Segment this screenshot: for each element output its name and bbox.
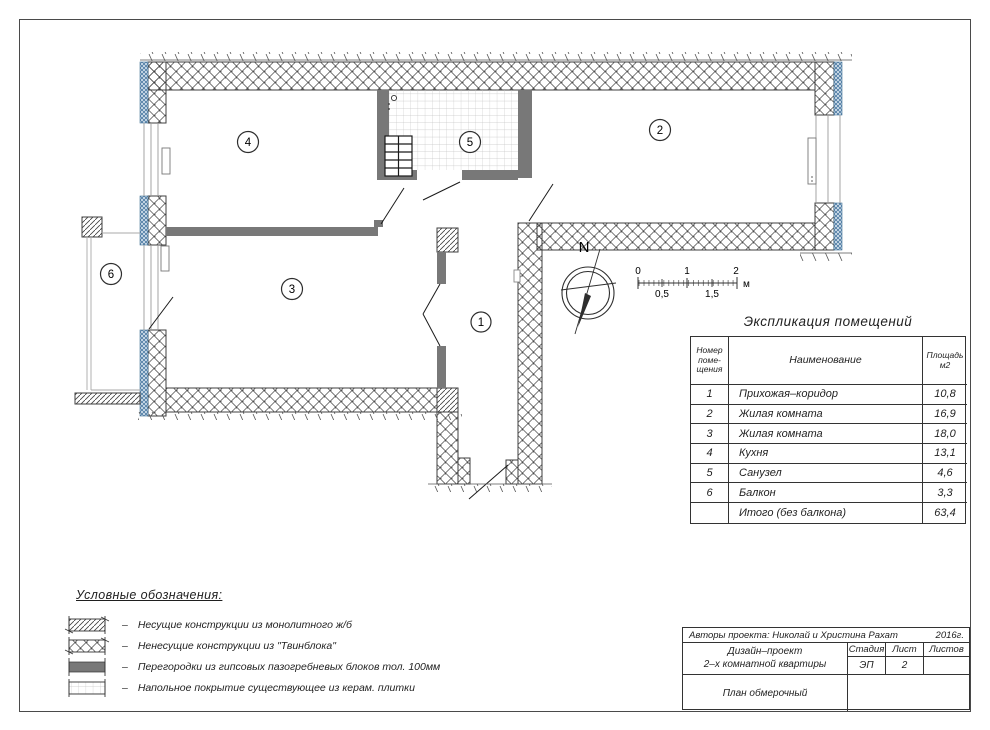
nonbearing-swatch-icon [64, 637, 110, 655]
row-number: 6 [691, 483, 729, 503]
scale-bar [638, 277, 737, 289]
room-bubble-2: 2 [650, 120, 671, 141]
floor-swatch-icon [64, 679, 110, 697]
svg-text:5: 5 [467, 137, 473, 149]
legend-label: Ненесущие конструкции из "Твинблока" [138, 640, 336, 652]
row-area: 10,8 [923, 385, 967, 405]
row-name: Прихожая–коридор [729, 385, 923, 405]
legend-item-bearing: – Несущие конструкции из монолитного ж/б [64, 614, 440, 635]
row-number: 2 [691, 405, 729, 425]
scale-2: 2 [733, 266, 739, 277]
legend-title: Условные обозначения: [76, 588, 440, 602]
legend-label: Напольное покрытие существующее из керам… [138, 682, 415, 694]
title-block: Авторы проекта: Николай и Христина Рахат… [682, 627, 970, 710]
room-schedule: Экспликация помещений Номерпоме-щения На… [690, 314, 966, 524]
row-area: 3,3 [923, 483, 967, 503]
title-block-authors-row: Авторы проекта: Николай и Христина Рахат… [683, 628, 969, 643]
row-area: 4,6 [923, 464, 967, 484]
empty-cell [848, 675, 969, 711]
sheets-value [924, 657, 969, 674]
drawing-sheet: N 0 1 2 0,5 1,5 м 4 5 2 [0, 0, 990, 730]
scale-1: 1 [684, 266, 690, 277]
sheet-value: 2 [886, 657, 923, 674]
scale-15: 1,5 [705, 289, 719, 300]
bearing-swatch-icon [64, 616, 110, 634]
year-text: 2016г. [936, 630, 969, 641]
sheet-column: Лист 2 [886, 643, 924, 674]
row-name: Санузел [729, 464, 923, 484]
north-compass [561, 249, 616, 334]
row-name: Жилая комната [729, 405, 923, 425]
sheet-label: Лист [886, 643, 923, 657]
col-header-name: Наименование [729, 337, 923, 385]
col-header-area: Площадьм2 [923, 337, 967, 385]
legend: Условные обозначения: – Несущие конструк… [64, 588, 440, 698]
stage-column: Стадия ЭП [848, 643, 886, 674]
svg-text:1: 1 [478, 317, 484, 329]
legend-item-partition: – Перегородки из гипсовых пазогребневых … [64, 656, 440, 677]
legend-label: Несущие конструкции из монолитного ж/б [138, 619, 352, 631]
row-name: Итого (без балкона) [729, 503, 923, 523]
title-block-main-row: Дизайн–проект 2–х комнатной квартиры Ста… [683, 643, 969, 675]
title-block-drawing-row: План обмерочный [683, 675, 969, 711]
row-name: Кухня [729, 444, 923, 464]
top-tick-line [140, 52, 852, 61]
wall-fixture [514, 270, 520, 282]
col-header-number: Номерпоме-щения [691, 337, 729, 385]
scale-unit: м [743, 279, 750, 290]
row-name: Жилая комната [729, 424, 923, 444]
scale-05: 0,5 [655, 289, 669, 300]
north-label: N [579, 239, 590, 256]
legend-dash: – [122, 619, 128, 631]
row-name: Балкон [729, 483, 923, 503]
svg-text:6: 6 [108, 269, 114, 281]
room-bubble-5: 5 [460, 132, 481, 153]
room-bubble-3: 3 [282, 279, 303, 300]
legend-dash: – [122, 640, 128, 652]
stage-label: Стадия [848, 643, 885, 657]
row-number: 4 [691, 444, 729, 464]
row-number: 3 [691, 424, 729, 444]
svg-text:3: 3 [289, 284, 295, 296]
row-number [691, 503, 729, 523]
row-area: 16,9 [923, 405, 967, 425]
legend-label: Перегородки из гипсовых пазогребневых бл… [138, 661, 440, 673]
stage-value: ЭП [848, 657, 885, 674]
scale-0: 0 [635, 266, 641, 277]
room-schedule-table: Номерпоме-щения Наименование Площадьм2 1… [690, 336, 966, 524]
row-area: 13,1 [923, 444, 967, 464]
authors-text: Авторы проекта: Николай и Христина Рахат [683, 630, 936, 641]
project-name: Дизайн–проект 2–х комнатной квартиры [683, 643, 848, 674]
room-bubble-1: 1 [471, 312, 491, 332]
legend-dash: – [122, 661, 128, 673]
towel-ladder [385, 136, 412, 176]
balcony-outline [87, 233, 140, 390]
room-bubble-6: 6 [101, 264, 122, 285]
row-area: 18,0 [923, 424, 967, 444]
legend-dash: – [122, 682, 128, 694]
drawing-name: План обмерочный [683, 675, 848, 711]
sheets-column: Листов [924, 643, 969, 674]
svg-text:4: 4 [245, 137, 252, 149]
legend-item-floor: – Напольное покрытие существующее из кер… [64, 677, 440, 698]
row-area: 63,4 [923, 503, 967, 523]
table-title: Экспликация помещений [690, 314, 966, 329]
partition-swatch-icon [64, 658, 110, 676]
room-bubble-4: 4 [238, 132, 259, 153]
sheets-label: Листов [924, 643, 969, 657]
concrete-columns [75, 217, 458, 412]
legend-item-nonbearing: – Ненесущие конструкции из "Твинблока" [64, 635, 440, 656]
svg-text:2: 2 [657, 125, 663, 137]
row-number: 5 [691, 464, 729, 484]
row-number: 1 [691, 385, 729, 405]
